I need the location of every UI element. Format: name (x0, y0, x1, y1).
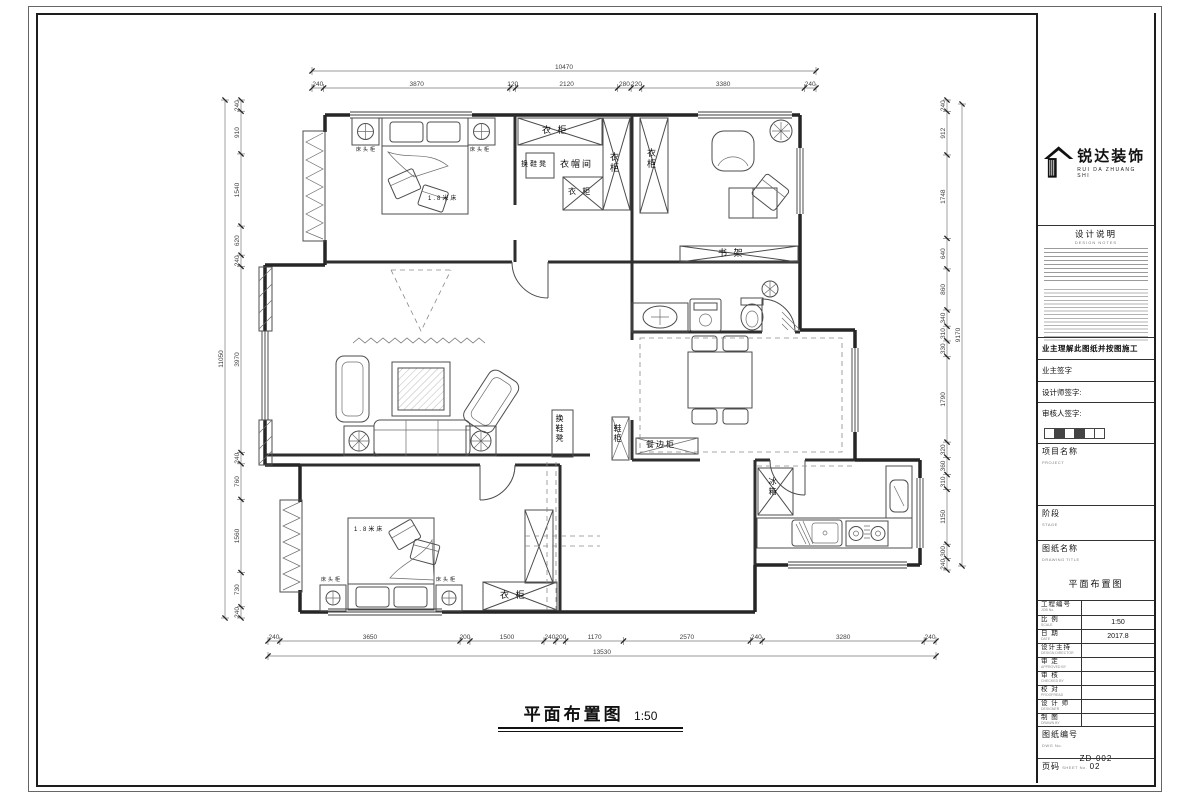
title-row-checked: 审 核CHECKED BY (1038, 671, 1154, 685)
plan-label-wardrobe-study: 衣柜 (646, 148, 655, 170)
plan-label-bed-1: 1.8米床 (428, 196, 458, 202)
plan-label-wardrobe-right: 衣柜 (609, 152, 618, 174)
stage-cell: 阶段 STAGE (1038, 505, 1154, 540)
title-underline-thick (498, 727, 683, 729)
notes-paragraph-zh (1044, 248, 1148, 282)
sheet-number-cell: 页码 SHEET No. 02 (1038, 758, 1154, 783)
project-name-cell: 项目名称 PROJECT (1038, 443, 1154, 505)
sheet-number-value: 02 (1090, 762, 1101, 771)
notes-paragraph-en (1044, 289, 1148, 341)
sheet-number-label: 页码 (1042, 762, 1060, 771)
design-notes: 设计说明 DESIGN NOTES (1038, 225, 1154, 337)
sheet-number-label-en: SHEET No. (1062, 765, 1087, 770)
plan-title-text: 平面布置图 (524, 705, 624, 724)
title-row-job-no: 工程编号JOB No. (1038, 601, 1154, 615)
dwg-number-label-en: DWG No. (1042, 743, 1063, 748)
plan-label-bed-2: 1.8米床 (354, 527, 384, 533)
plan-title: 平面布置图 1:50 (498, 700, 683, 732)
title-block-rows: 工程编号JOB No.比 例SCALE1:50日 期DATE2017.8设计主持… (1038, 600, 1154, 726)
title-underline-thin (498, 731, 683, 732)
company-name-en: RUI DA ZHUANG SHI (1077, 167, 1150, 179)
project-label: 项目名称 (1042, 447, 1078, 456)
plan-label-nightstand-1: 床头柜 (356, 148, 377, 153)
graphic-scale-bar (1038, 424, 1154, 443)
house-logo-icon (1042, 143, 1075, 179)
plan-label-nightstand-4: 床头柜 (436, 578, 457, 583)
plan-label-shoe-stool-1: 换鞋凳 (521, 161, 548, 168)
dwg-number-cell: 图纸编号 DWG No. ZD-002 (1038, 726, 1154, 758)
signature-row-1: 设计师签字: (1038, 381, 1154, 402)
title-row-proofread: 校 对PROOFREAD (1038, 685, 1154, 699)
dwg-number-label: 图纸编号 (1042, 730, 1078, 739)
title-block: 锐达装饰 RUI DA ZHUANG SHI 设计说明 DESIGN NOTES… (1036, 13, 1154, 783)
plan-title-scale: 1:50 (634, 709, 657, 723)
signature-row-0: 业主签字 (1038, 360, 1154, 381)
drawing-title-label: 图纸名称 (1042, 544, 1078, 553)
title-row-design-director: 设计主持DESIGN DIRECTOR (1038, 643, 1154, 657)
stage-label-en: STAGE (1042, 522, 1058, 527)
plan-label-shoe-cabinet: 鞋柜 (613, 424, 621, 444)
title-row-approved: 审 定APPROVED BY (1038, 657, 1154, 671)
company-logo: 锐达装饰 RUI DA ZHUANG SHI (1038, 13, 1154, 225)
signature-rows: 业主签字设计师签字:审核人签字: (1038, 359, 1154, 424)
plan-label-sideboard: 餐边柜 (646, 441, 676, 449)
stage-label: 阶段 (1042, 509, 1060, 518)
title-row-drawn: 制 图DRAWN BY (1038, 713, 1154, 727)
company-name-zh: 锐达装饰 (1077, 145, 1150, 166)
signature-row-2: 审核人签字: (1038, 402, 1154, 423)
drawing-title-cell: 图纸名称 DRAWING TITLE 平面布置图 (1038, 540, 1154, 600)
drawing-title-value: 平面布置图 (1042, 577, 1150, 590)
plan-label-wardrobe-low: 衣 柜 (568, 188, 592, 196)
design-notes-heading-en: DESIGN NOTES (1042, 240, 1150, 245)
owner-statement: 业主理解此图纸并按图施工 (1038, 337, 1154, 359)
drawing-sheet: 2403870120212028022033802401047024036502… (0, 0, 1200, 797)
plan-label-shoe-stool-2: 换鞋凳 (555, 414, 563, 444)
plan-label-bookshelf: 书 架 (718, 249, 745, 258)
plan-label-wardrobe-top: 衣 柜 (542, 126, 569, 135)
title-row-designer: 设 计 师DESIGNER (1038, 699, 1154, 713)
title-row-date: 日 期DATE2017.8 (1038, 629, 1154, 643)
drawing-title-label-en: DRAWING TITLE (1042, 557, 1080, 562)
plan-label-cloakroom: 衣帽间 (560, 160, 593, 169)
plan-label-nightstand-2: 床头柜 (470, 148, 491, 153)
plan-label-fridge: 冰箱 (768, 477, 776, 497)
design-notes-heading: 设计说明 (1042, 228, 1150, 240)
plan-labels: 床头柜床头柜1.8米床衣 柜换鞋凳衣帽间衣柜衣 柜衣柜书 架换鞋凳鞋柜餐边柜冰箱… (0, 0, 1200, 797)
plan-label-nightstand-3: 床头柜 (321, 578, 342, 583)
title-row-scale: 比 例SCALE1:50 (1038, 615, 1154, 629)
project-label-en: PROJECT (1042, 460, 1064, 465)
plan-label-wardrobe-bed2: 衣 柜 (500, 591, 527, 600)
